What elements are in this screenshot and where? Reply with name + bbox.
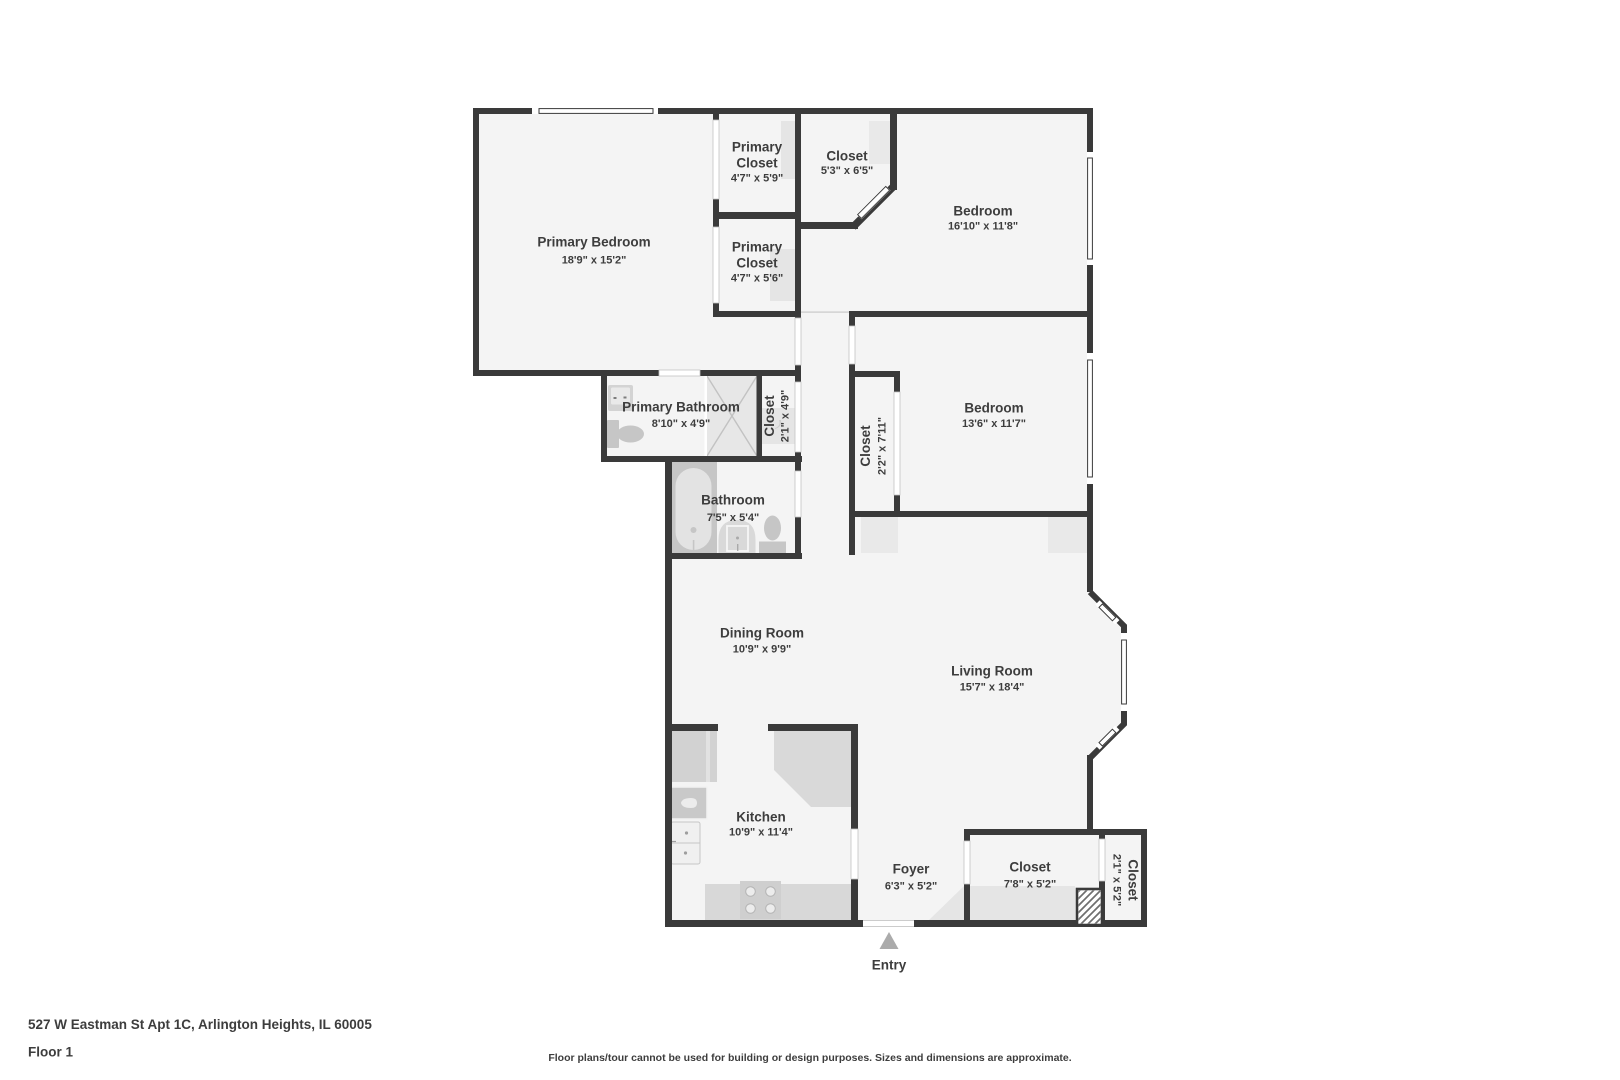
svg-text:2'2" x 7'11": 2'2" x 7'11" xyxy=(877,417,889,475)
svg-text:16'10" x 11'8": 16'10" x 11'8" xyxy=(948,221,1018,233)
svg-text:10'9" x 9'9": 10'9" x 9'9" xyxy=(733,644,791,656)
svg-text:Living Room: Living Room xyxy=(951,663,1033,678)
svg-text:7'5" x 5'4": 7'5" x 5'4" xyxy=(707,512,759,524)
svg-text:Bedroom: Bedroom xyxy=(953,203,1012,218)
svg-text:Foyer: Foyer xyxy=(893,861,931,876)
svg-text:10'9" x 11'4": 10'9" x 11'4" xyxy=(729,827,793,839)
svg-text:4'7" x 5'6": 4'7" x 5'6" xyxy=(731,273,783,285)
svg-text:Closet: Closet xyxy=(1126,859,1141,901)
svg-text:Primary Bedroom: Primary Bedroom xyxy=(537,234,650,249)
svg-text:2'1" x 5'2": 2'1" x 5'2" xyxy=(1111,854,1123,906)
svg-text:15'7" x 18'4": 15'7" x 18'4" xyxy=(960,682,1025,694)
svg-text:Primary Bathroom: Primary Bathroom xyxy=(622,399,740,414)
svg-text:Primary: Primary xyxy=(732,239,783,254)
svg-text:Dining Room: Dining Room xyxy=(720,625,804,640)
svg-text:Closet: Closet xyxy=(858,425,873,467)
svg-text:Bedroom: Bedroom xyxy=(964,400,1023,415)
svg-text:5'3" x 6'5": 5'3" x 6'5" xyxy=(821,165,873,177)
svg-text:4'7" x 5'9": 4'7" x 5'9" xyxy=(731,173,783,185)
svg-text:Closet: Closet xyxy=(1009,859,1051,874)
svg-text:Closet: Closet xyxy=(736,155,778,170)
svg-text:Bathroom: Bathroom xyxy=(701,492,765,507)
svg-text:6'3" x 5'2": 6'3" x 5'2" xyxy=(885,881,937,893)
svg-text:Floor plans/tour cannot be use: Floor plans/tour cannot be used for buil… xyxy=(548,1052,1071,1064)
svg-text:Closet: Closet xyxy=(736,255,778,270)
svg-text:527 W Eastman St Apt 1C, Arlin: 527 W Eastman St Apt 1C, Arlington Heigh… xyxy=(28,1017,372,1032)
svg-text:13'6" x 11'7": 13'6" x 11'7" xyxy=(962,418,1026,430)
svg-text:7'8" x 5'2": 7'8" x 5'2" xyxy=(1004,879,1056,891)
svg-text:Entry: Entry xyxy=(872,957,907,972)
svg-text:Floor 1: Floor 1 xyxy=(28,1045,73,1060)
svg-text:Kitchen: Kitchen xyxy=(736,809,786,824)
svg-text:Primary: Primary xyxy=(732,139,783,154)
svg-text:Closet: Closet xyxy=(762,395,777,437)
svg-text:2'1" x 4'9": 2'1" x 4'9" xyxy=(780,390,792,442)
svg-text:8'10" x 4'9": 8'10" x 4'9" xyxy=(652,418,710,430)
svg-text:18'9" x 15'2": 18'9" x 15'2" xyxy=(562,255,627,267)
svg-text:Closet: Closet xyxy=(826,148,868,163)
